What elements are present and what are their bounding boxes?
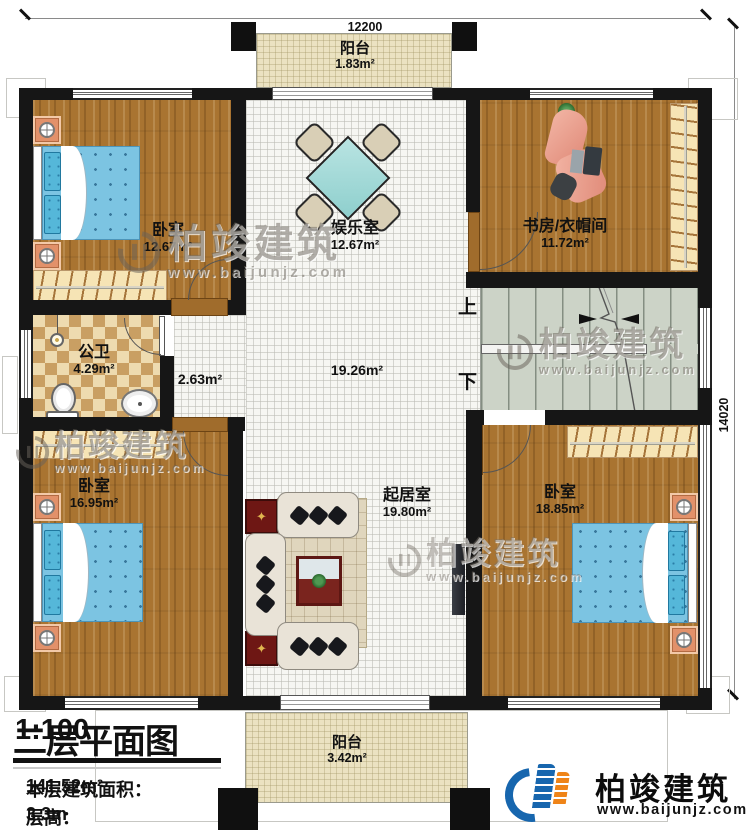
room-label-corridor: 2.63m² [165,371,235,387]
watermark: 柏竣建筑www.baijunjz.com [388,538,584,583]
wall-top [19,88,73,100]
watermark-logo-icon [382,538,427,583]
dimension-tick [727,17,739,29]
wall-bottom [430,696,508,710]
window-symbol [698,425,712,688]
bed-symbol [572,523,697,623]
wardrobe-symbol [567,426,698,458]
wall-top [433,88,530,100]
wall-interior [19,300,171,315]
title-block: 二层平面图1:100 本层建筑面积：141.52m² 层高：3.3m [13,714,253,834]
room-label-hall: 19.26m² [307,362,407,378]
wardrobe-symbol [670,103,698,271]
sofa-symbol [277,492,359,538]
lamp-cord [57,315,58,335]
room-label-bathroom: 公卫 4.29m² [54,344,134,377]
window-symbol [530,88,653,100]
sliding-door-symbol [280,695,430,710]
lamp-icon [676,632,692,648]
wall-left [19,88,33,710]
wall-bottom [19,696,65,710]
nightstand-symbol [670,493,698,521]
wall-interior [228,431,243,696]
floor-height-value: 3.3m [26,804,67,825]
wall-bottom [660,696,712,710]
column [452,22,477,51]
watermark: 柏竣建筑www.baijunjz.com [497,328,697,376]
window-symbol [65,696,198,710]
floor-area-value: 141.52m² [26,776,103,797]
corridor-floor [174,315,246,417]
sliding-door-symbol [272,87,433,100]
end-table-symbol: ✦ [245,631,278,666]
watermark: 柏竣建筑www.baijunjz.com [118,224,349,280]
lamp-icon [676,499,692,515]
nightstand-symbol [33,242,61,270]
nightstand-symbol [670,626,698,654]
plan-scale: 1:100 [15,714,89,747]
room-label-bedroom-bottom-left: 卧室 16.95m² [44,478,144,511]
title-rule-thin [13,767,221,769]
sofa-symbol [245,533,286,636]
wall-interior [466,272,712,288]
door-symbol [468,212,480,272]
room-label-living: 起居室 19.80m² [357,487,457,520]
coffee-table-symbol [296,556,342,606]
end-table-symbol: ✦ [245,499,278,534]
room-label-balcony-top: 阳台 1.83m² [305,40,405,72]
floor-plan-canvas: 12200 14020 上 下 [0,0,750,837]
title-rule [13,758,221,763]
right-dimension-line [734,27,735,699]
top-dimension-line [25,18,706,19]
lamp-icon [39,122,55,138]
window-symbol [19,330,33,398]
watermark-logo-icon [490,327,540,377]
room-label-balcony-bottom: 阳台 3.42m² [297,734,397,766]
brand-logo: 柏竣建筑 www.baijunjz.com [505,760,745,830]
watermark: 柏竣建筑www.baijunjz.com [16,430,206,474]
column [231,22,256,51]
room-label-bedroom-bottom-right: 卧室 18.85m² [510,484,610,517]
bed-symbol [33,523,143,622]
column [450,788,490,830]
stairs-down-label: 下 [458,367,477,394]
watermark-logo-icon [10,430,55,475]
nightstand-symbol [33,624,61,652]
wall-top [192,88,272,100]
wall-interior [545,410,712,425]
logo-url-text: www.baijunjz.com [597,802,748,818]
sink-symbol [121,389,158,418]
window-symbol [73,88,192,100]
room-label-study: 书房/衣帽间 11.72m² [495,218,635,251]
exterior-platform-outline [2,356,18,434]
wall-interior [228,417,245,431]
wall-interior [466,100,480,212]
logo-building-icon [553,772,570,804]
watermark-logo-icon [110,223,168,281]
window-symbol [698,308,712,388]
sofa-symbol [277,622,359,670]
window-symbol [508,696,660,710]
wall-top [653,88,712,100]
wall-interior [466,410,484,425]
plant-symbol [312,574,326,588]
toilet-symbol [51,383,76,414]
door-symbol [171,298,228,316]
top-dimension-label: 12200 [320,20,410,34]
wall-bottom [198,696,280,710]
right-dimension-label: 14020 [717,381,731,449]
monitor-symbol [583,146,603,176]
wall-interior [228,300,246,315]
lamp-icon [39,248,55,264]
lamp-icon [39,630,55,646]
stairs-up-label: 上 [458,292,477,319]
nightstand-symbol [33,116,61,144]
